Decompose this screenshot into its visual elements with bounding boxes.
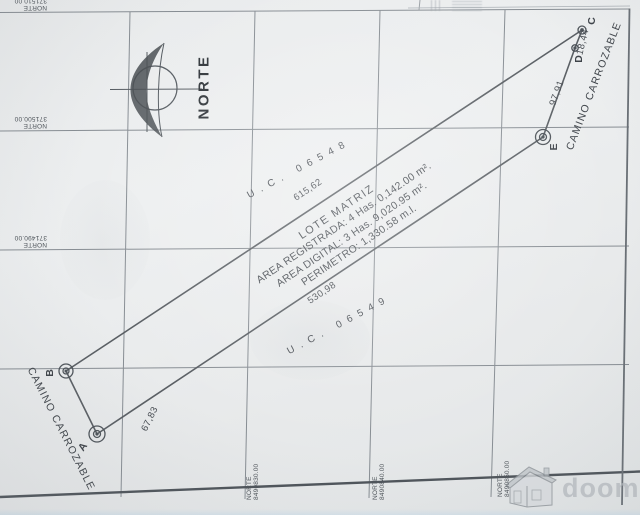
- titleblock-fragment: [431, 0, 441, 11]
- grid-axis-word: NORTE: [372, 448, 379, 500]
- grid-axis-word: NORTE: [1, 122, 47, 129]
- grid-label-north-371500: NORTE 371500.00: [1, 115, 47, 129]
- grid-axis-value: 8490850.00: [504, 445, 511, 497]
- vertex-label-d: D: [573, 55, 585, 63]
- grid-axis-value: 371500.00: [1, 115, 47, 122]
- vertex-label-e: E: [548, 143, 560, 150]
- grid-axis-value: 371490.00: [1, 234, 47, 241]
- grid-label-north-8490830: NORTE 8490830.00: [246, 448, 260, 500]
- watermark-text: doomos: [562, 473, 640, 504]
- survey-plan-sheet: NORTE NORTE 371510.00 NORTE 371500.00 NO…: [0, 0, 640, 515]
- grid-axis-value: 8490830.00: [253, 448, 260, 500]
- grid-axis-word: NORTE: [246, 448, 253, 500]
- grid-axis-word: NORTE: [1, 4, 47, 11]
- north-arrow-icon: [110, 43, 202, 137]
- grid-label-north-371510: NORTE 371510.00: [1, 0, 47, 11]
- grid-axis-value: 371510.00: [1, 0, 47, 4]
- north-arrow-label: NORTE: [196, 55, 213, 120]
- grid-axis-word: NORTE: [497, 445, 504, 497]
- vertex-label-b: B: [44, 369, 56, 377]
- scan-bottom-edge: [0, 509, 640, 515]
- house-watermark-icon: [506, 467, 556, 507]
- grid-label-north-371490: NORTE 371490.00: [1, 234, 47, 248]
- grid-label-north-8490850: NORTE 8490850.00: [497, 445, 511, 497]
- titleblock-fragment: [452, 0, 482, 11]
- grid-axis-word: NORTE: [1, 241, 47, 248]
- vertex-label-c: C: [586, 17, 598, 25]
- grid-label-north-8490840: NORTE 8490840.00: [372, 448, 386, 500]
- grid-axis-value: 8490840.00: [379, 448, 386, 500]
